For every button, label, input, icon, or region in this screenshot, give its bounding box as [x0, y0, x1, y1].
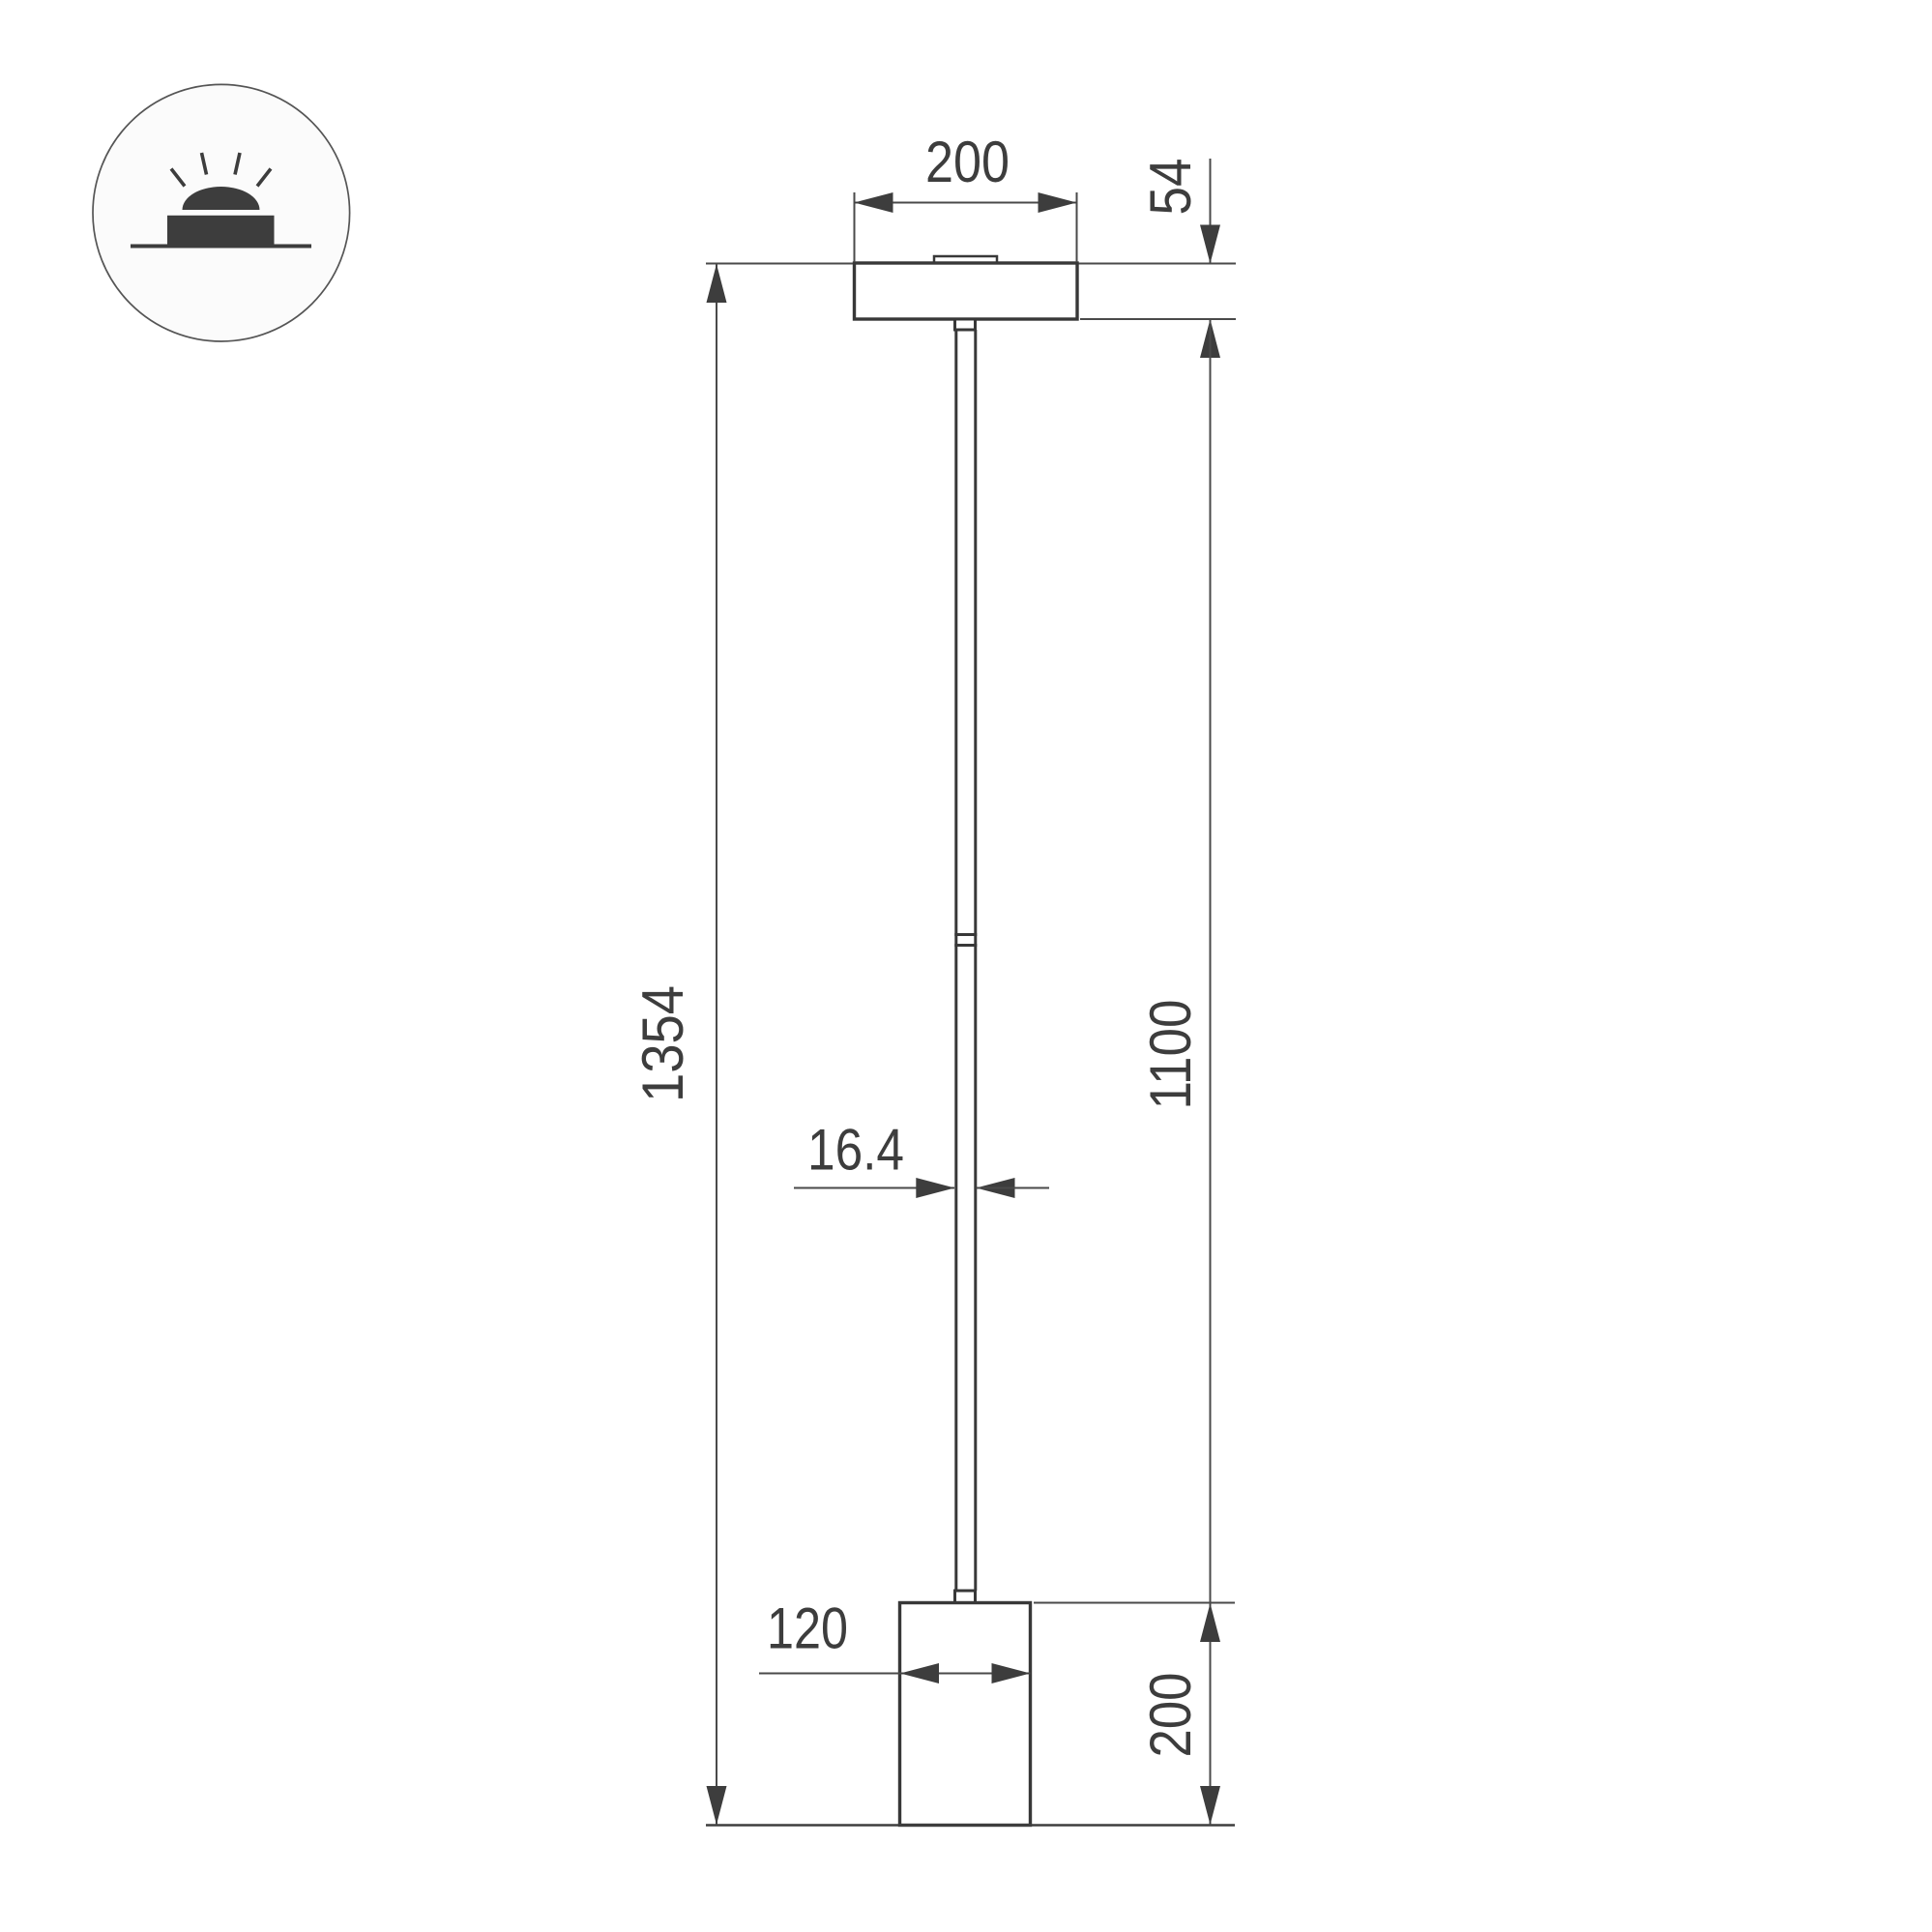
svg-text:1100: 1100	[1138, 1000, 1203, 1110]
svg-text:200: 200	[925, 130, 1010, 194]
svg-text:200: 200	[1138, 1673, 1203, 1758]
svg-text:120: 120	[767, 1596, 848, 1661]
svg-text:1354: 1354	[630, 985, 695, 1102]
svg-text:54: 54	[1138, 159, 1203, 216]
svg-text:16.4: 16.4	[807, 1118, 904, 1183]
